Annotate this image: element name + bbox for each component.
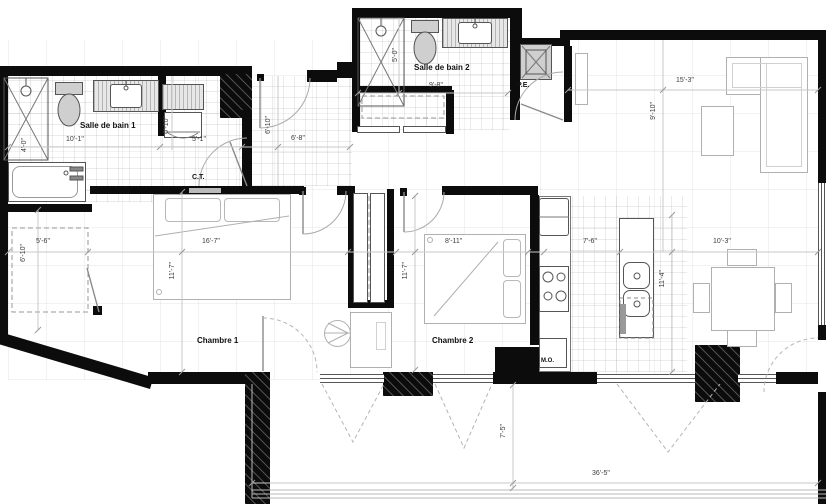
window bbox=[818, 183, 825, 325]
window bbox=[597, 374, 695, 383]
dim-bath2-h: 5'-0" bbox=[392, 48, 399, 62]
bed-pillow bbox=[503, 280, 521, 318]
closet-door bbox=[403, 126, 446, 133]
tv-console bbox=[575, 53, 588, 105]
dim-bath2-w: 9'-8" bbox=[429, 82, 443, 89]
balcony-pillar bbox=[245, 372, 270, 504]
window bbox=[738, 374, 776, 383]
wall bbox=[0, 66, 8, 212]
closet-door bbox=[370, 193, 385, 303]
dim-bed2-h: 11'-7" bbox=[402, 262, 409, 279]
dim-bed1-w: 16'-7" bbox=[202, 238, 220, 245]
island-sink bbox=[623, 290, 650, 317]
vanity-sink-basin bbox=[110, 84, 142, 108]
wall bbox=[0, 204, 8, 336]
laundry-counter bbox=[162, 84, 204, 110]
sofa-seat bbox=[766, 63, 802, 167]
wall bbox=[495, 347, 540, 373]
wall bbox=[307, 70, 337, 82]
dim-wic-h: 6'-10" bbox=[20, 244, 27, 262]
desk-chair bbox=[324, 320, 351, 347]
wall bbox=[818, 392, 826, 504]
door-hinge bbox=[400, 188, 407, 196]
wall bbox=[560, 30, 826, 40]
diagonal-wall bbox=[0, 332, 153, 389]
door-hinge bbox=[93, 306, 102, 315]
ct-label: C.T. bbox=[192, 174, 204, 181]
dim-bath1-shower: 4'-0" bbox=[21, 138, 28, 152]
wall bbox=[540, 372, 597, 384]
wall bbox=[446, 90, 454, 134]
dim-bath1-w: 10'-1" bbox=[66, 136, 84, 143]
dining-chair bbox=[775, 283, 792, 313]
dim-living-w: 15'-3" bbox=[676, 77, 694, 84]
dim-balcony-w: 36'-5" bbox=[592, 470, 610, 477]
dim-hall-w: 6'-8" bbox=[291, 135, 305, 142]
wall bbox=[387, 189, 394, 308]
mo-label: M.O. bbox=[541, 358, 554, 364]
dim-dining-w: 10'-3" bbox=[713, 238, 731, 245]
closet-door bbox=[353, 193, 368, 303]
closet-door bbox=[357, 126, 400, 133]
dining-chair bbox=[727, 249, 757, 266]
stove bbox=[539, 266, 569, 312]
desk-monitor bbox=[376, 322, 386, 350]
dim-wd-h: 6'-10" bbox=[163, 116, 170, 134]
dim-balcony-d: 7'-5" bbox=[500, 424, 507, 438]
door-hinge bbox=[299, 187, 306, 195]
door-hinge bbox=[257, 74, 264, 81]
door-hinge bbox=[243, 182, 251, 190]
walkin-closet-rod bbox=[12, 228, 88, 312]
dim-kitchen-w: 7'-6" bbox=[583, 238, 597, 245]
room-label-bath1: Salle de bain 1 bbox=[80, 121, 136, 130]
toilet-tank bbox=[411, 20, 439, 33]
bed-pillow bbox=[503, 239, 521, 277]
window bbox=[320, 374, 384, 383]
bed2-door-arc bbox=[404, 192, 444, 232]
toilet-bowl bbox=[414, 32, 436, 64]
room-label-bed2: Chambre 2 bbox=[432, 336, 473, 345]
room-label-bath2: Salle de bain 2 bbox=[414, 63, 470, 72]
dining-chair bbox=[727, 330, 757, 347]
window-swing bbox=[435, 384, 492, 448]
pillar bbox=[695, 345, 740, 402]
bed-pillow bbox=[165, 198, 221, 222]
coffee-table bbox=[701, 106, 734, 156]
wall bbox=[0, 66, 252, 76]
wall bbox=[352, 8, 522, 18]
wall bbox=[148, 372, 252, 384]
wall bbox=[493, 372, 542, 384]
balcony-rail bbox=[252, 490, 826, 498]
dim-bed1-h: 11'-7" bbox=[169, 262, 176, 279]
bathtub-inner bbox=[12, 166, 78, 198]
bed-pillow bbox=[224, 198, 280, 222]
wall bbox=[776, 372, 818, 384]
floor-plan: Salle de bain 1 Salle de bain 2 Chambre … bbox=[0, 0, 826, 504]
island-sink bbox=[623, 262, 650, 289]
wall bbox=[352, 8, 360, 132]
wall bbox=[818, 35, 826, 183]
dining-chair bbox=[693, 283, 710, 313]
wall bbox=[530, 195, 539, 345]
coat-closet-rod bbox=[362, 96, 444, 118]
pier bbox=[383, 372, 433, 396]
wall bbox=[818, 325, 826, 340]
dishwasher-strip bbox=[620, 304, 626, 334]
ct-threshold bbox=[189, 188, 221, 193]
electrical-panel bbox=[520, 44, 552, 80]
vanity-sink-basin bbox=[458, 22, 492, 44]
wall bbox=[442, 186, 538, 195]
toilet-bowl bbox=[58, 94, 80, 126]
bed1-door-arc bbox=[303, 191, 346, 234]
room-label-bed1: Chambre 1 bbox=[197, 336, 238, 345]
bath1-door-arc bbox=[199, 138, 247, 186]
wall bbox=[564, 46, 572, 122]
dining-table bbox=[711, 267, 775, 331]
fridge bbox=[539, 198, 569, 236]
window bbox=[433, 374, 493, 383]
balcony-door1-arc bbox=[263, 318, 317, 372]
dim-kitchen-h: 11'-4" bbox=[659, 270, 666, 287]
dim-wic-w: 5'-6" bbox=[36, 238, 50, 245]
toilet-tank bbox=[55, 82, 83, 95]
pe-label: P.E. bbox=[517, 82, 529, 89]
dim-hall-h: 6'-10" bbox=[265, 116, 272, 134]
window-swing bbox=[322, 384, 384, 442]
pe-door-leaf bbox=[521, 104, 563, 120]
dim-bed2-w: 8'-11" bbox=[445, 238, 462, 245]
dim-living-h: 9'-10" bbox=[650, 102, 657, 120]
dim-wd-w: 5'-1" bbox=[192, 136, 206, 143]
wall bbox=[0, 204, 92, 212]
